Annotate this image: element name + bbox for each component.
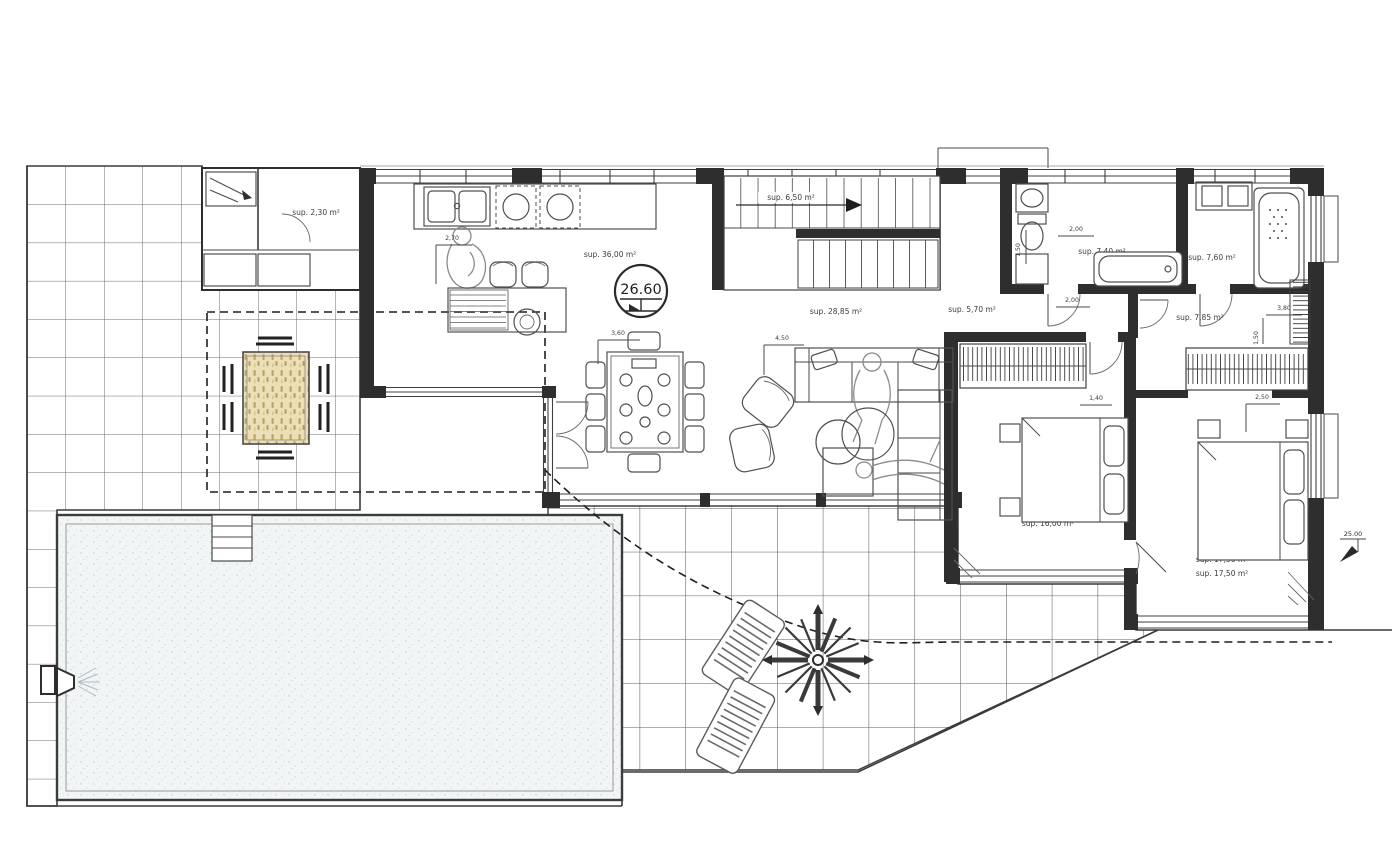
dim-bath1: 2,00 1,50 — [1015, 226, 1094, 264]
bedroom2-south-window — [1124, 614, 1324, 630]
kitchen-rear-window — [374, 386, 556, 398]
svg-text:25.00: 25.00 — [1344, 530, 1363, 538]
bedroom1-south-window — [946, 568, 1138, 584]
bathtub-horizontal-icon — [1094, 252, 1182, 286]
living-room: sup. 28,85 m² 4,50 — [728, 307, 953, 520]
sofa-main — [795, 348, 953, 402]
washbasin-icon — [1016, 184, 1048, 212]
kitchen-sink-icon — [424, 187, 490, 226]
toilet-icon — [1018, 214, 1046, 250]
svg-text:26.60: 26.60 — [620, 282, 662, 298]
bed-1-icon — [1000, 418, 1128, 522]
kitchen-island — [448, 262, 566, 335]
cooktop-icon — [496, 186, 580, 228]
svg-text:2,50: 2,50 — [1255, 394, 1269, 401]
bath1-cabinet — [1016, 254, 1048, 284]
wardrobe-hangers-dressing — [1186, 348, 1308, 390]
dressing-room: sup. 7,85 m² 3,80 1,50 — [1176, 280, 1310, 390]
pool-steps-icon — [212, 515, 252, 561]
lower-terrace-grid — [548, 506, 1158, 770]
living-south-window — [542, 492, 962, 508]
dining-table: 3,60 — [586, 330, 704, 472]
swimming-pool — [41, 515, 622, 800]
room-label-hall: sup. 5,70 m² — [948, 305, 996, 314]
kitchen: sup. 36,00 m² 2,70 — [414, 184, 656, 335]
room-label-living: sup. 28,85 m² — [810, 307, 862, 316]
person-on-sofa — [853, 353, 890, 444]
room-label-bedroom2-b: sup. 17,50 m² — [1196, 569, 1248, 578]
bed-2-icon — [1198, 420, 1308, 560]
bathroom-2: sup. 7,60 m² — [1188, 182, 1304, 288]
hallway: sup. 5,70 m² 2,00 — [948, 297, 1090, 314]
room-label-dressing: sup. 7,85 m² — [1176, 313, 1224, 322]
bar-stool-2 — [522, 262, 548, 287]
floor-plan-page: sup. 2,30 m² — [0, 0, 1400, 868]
bedroom2-door — [1136, 542, 1166, 574]
bedroom-2: sup. 17,50 m² sup. 17,50 m² 2,50 — [1196, 394, 1314, 605]
armchair-1 — [738, 373, 797, 432]
svg-text:3,60: 3,60 — [611, 330, 625, 337]
svg-text:2,00: 2,00 — [1065, 297, 1079, 304]
dressing-door — [1140, 300, 1168, 328]
bathtub-vertical-icon — [1254, 188, 1304, 288]
bathroom-1: sup. 7,40 m² 2,00 1,50 — [1015, 184, 1182, 286]
room-label-stairs: sup. 6,50 m² — [767, 193, 815, 202]
floor-plan-drawing: sup. 2,30 m² — [0, 0, 1400, 868]
svg-text:2,70: 2,70 — [445, 235, 459, 242]
svg-text:1,50: 1,50 — [1253, 331, 1260, 345]
wardrobe-side-rail — [1290, 280, 1310, 344]
living-double-door — [556, 402, 588, 468]
person-lying — [856, 440, 944, 484]
dim-hall: 2,00 — [1056, 297, 1090, 307]
armchair-2 — [728, 422, 776, 473]
dim-kitchen: 2,70 — [436, 235, 472, 284]
level-marker-exterior: 25.00 — [1340, 530, 1366, 562]
svg-text:2,00: 2,00 — [1069, 226, 1083, 233]
dim-bed1: 1,40 — [1080, 395, 1112, 405]
room-label-storage: sup. 2,30 m² — [292, 208, 340, 217]
svg-text:1,40: 1,40 — [1089, 395, 1103, 402]
room-label-kitchen-living: sup. 36,00 m² — [584, 250, 636, 259]
dim-bed2: 2,50 — [1246, 394, 1280, 432]
wardrobe-hangers-bedroom1 — [960, 344, 1086, 388]
svg-text:3,80: 3,80 — [1277, 305, 1291, 312]
entry-porch: sup. 2,30 m² — [202, 168, 360, 290]
dim-sofa: 4,50 — [764, 335, 804, 375]
bedroom-1: sup. 16,00 m² 1,40 — [954, 344, 1128, 578]
plant-icon — [514, 309, 540, 335]
room-label-bath2: sup. 7,60 m² — [1188, 253, 1236, 262]
staircase: sup. 6,50 m² — [724, 176, 940, 290]
bedroom1-door — [1090, 342, 1122, 374]
bar-stool-1 — [490, 262, 516, 287]
bath2-counter — [1196, 182, 1252, 210]
svg-text:4,50: 4,50 — [775, 335, 789, 342]
level-marker-interior: 26.60 — [615, 265, 667, 317]
